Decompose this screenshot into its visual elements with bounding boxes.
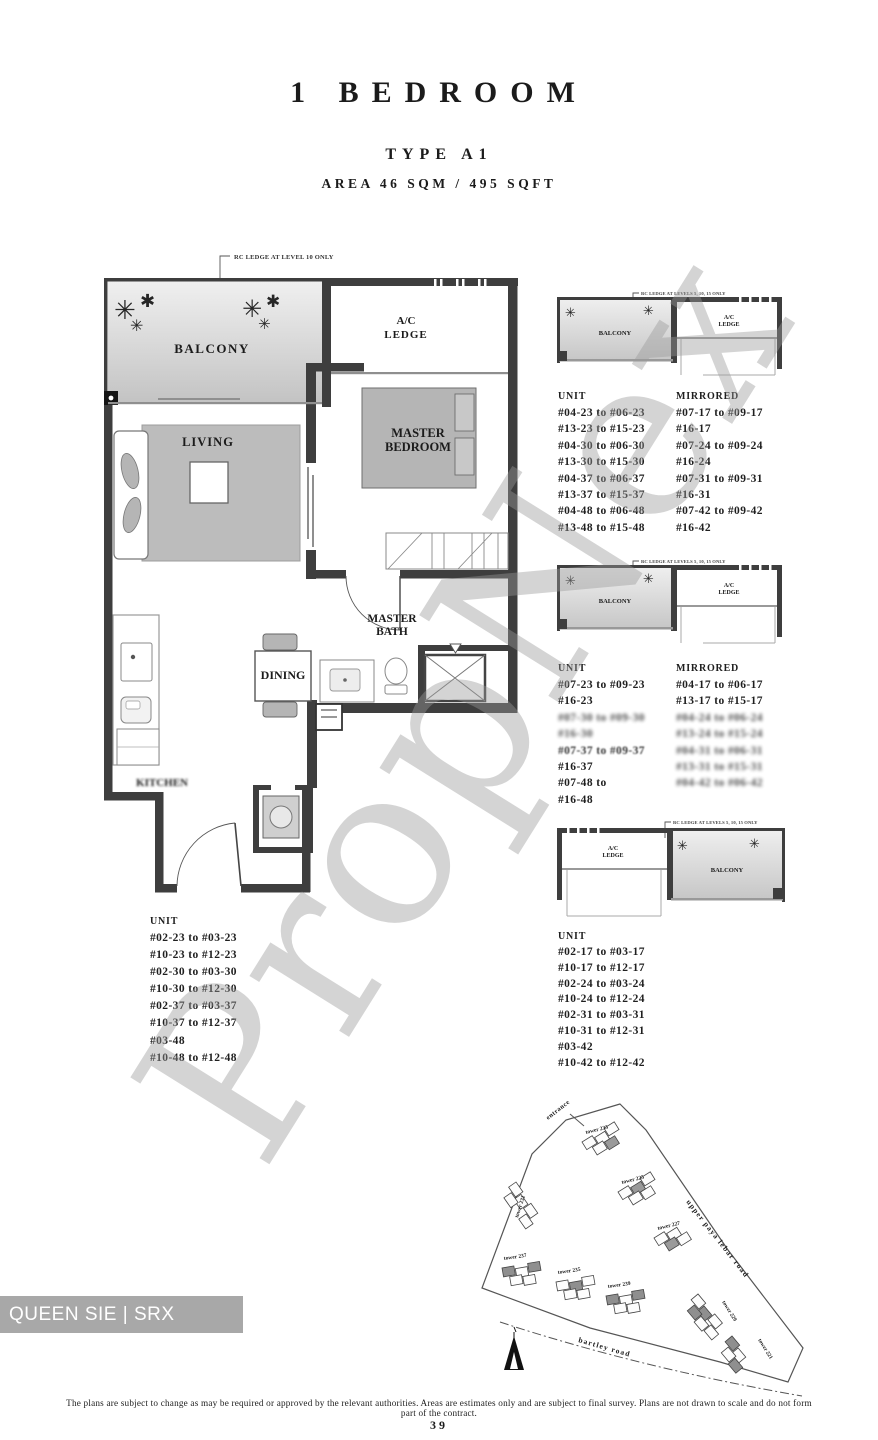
unit-range: #04-48 to #06-48: [558, 503, 645, 519]
unit-range: #13-31 to #15-31: [676, 759, 763, 775]
svg-text:✱: ✱: [266, 292, 280, 312]
unit-range: #03-42: [558, 1040, 645, 1056]
site-boundary: [482, 1104, 803, 1396]
unit-range: #04-37 to #06-37: [558, 471, 645, 487]
unit-column-header: UNIT: [558, 663, 645, 674]
unit-range: #02-17 to #03-17: [558, 945, 645, 961]
ac-ledge-label2: LEDGE: [384, 329, 428, 341]
unit-range: #16-37: [558, 759, 645, 775]
unit-range: #13-17 to #15-17: [676, 693, 763, 709]
unit-range: #04-42 to #06-42: [676, 775, 763, 791]
unit-range: #13-24 to #15-24: [676, 726, 763, 742]
unit-column-header: UNIT: [150, 916, 237, 927]
north-arrow-icon: [504, 1327, 524, 1370]
tower-cluster: [500, 1122, 751, 1373]
stack3-annotation: RC LEDGE AT LEVELS 5, 10, 15 ONLY: [673, 820, 758, 825]
stack2-mirrored-list: MIRRORED #04-17 to #06-17 #13-17 to #15-…: [676, 663, 763, 792]
main-plan-unit-list: UNIT #02-23 to #03-23 #10-23 to #12-23 #…: [150, 916, 237, 1067]
unit-range: #04-24 to #06-24: [676, 710, 763, 726]
stack3-unit-list: UNIT #02-17 to #03-17 #10-17 to #12-17 #…: [558, 931, 645, 1071]
master-bath-label2: BATH: [376, 626, 408, 638]
unit-column-header: UNIT: [558, 931, 645, 942]
entrance-label: entrance: [545, 1099, 572, 1122]
unit-range: #10-23 to #12-23: [150, 947, 237, 964]
unit-range: #10-24 to #12-24: [558, 992, 645, 1008]
stack1-ac-label2: LEDGE: [718, 322, 739, 328]
stack1-mirrored-list: MIRRORED #07-17 to #09-17 #16-17 #07-24 …: [676, 391, 763, 536]
master-bedroom-label2: BEDROOM: [385, 440, 451, 454]
unit-type-subtitle: TYPE A1: [0, 146, 878, 164]
tower-label: tower 229: [720, 1300, 737, 1323]
unit-range: #04-31 to #06-31: [676, 743, 763, 759]
stack-diagram-1: RC LEDGE AT LEVELS 5, 10, 15 ONLY ✳ ✳ BA…: [553, 283, 793, 383]
balcony-label: BALCONY: [174, 341, 250, 356]
stack3-balcony-label: BALCONY: [711, 867, 744, 874]
tower-label: tower 237: [503, 1253, 527, 1262]
stack2-unit-list: UNIT #07-23 to #09-23 #16-23 #07-30 to #…: [558, 663, 645, 808]
agent-watermark-badge: QUEEN SIE | SRX PROPERTY: [0, 1296, 243, 1333]
page-title: 1 BEDROOM: [0, 76, 878, 110]
plant-icon: ✳: [677, 839, 688, 854]
unit-area-subtitle: AREA 46 SQM / 495 SQFT: [0, 176, 878, 192]
unit-range: #10-37 to #12-37: [150, 1015, 237, 1032]
tower-label: tower 221: [756, 1338, 773, 1361]
road-label-upper-paya-lebar: upper paya lebar road: [684, 1198, 751, 1280]
unit-range: #02-31 to #03-31: [558, 1008, 645, 1024]
unit-range: #04-23 to #06-23: [558, 405, 645, 421]
unit-range: #07-31 to #09-31: [676, 471, 763, 487]
unit-range: #07-30 to #09-30: [558, 710, 645, 726]
unit-range: #02-23 to #03-23: [150, 930, 237, 947]
stack1-ac-label: A/C: [724, 315, 734, 321]
bedroom-furniture: [362, 388, 508, 569]
svg-text:RC LEDGE AT LEVEL 10 ONLY: RC LEDGE AT LEVEL 10 ONLY: [234, 254, 334, 261]
stack2-ac-label: A/C: [724, 583, 734, 589]
stack1-unit-list: UNIT #04-23 to #06-23 #13-23 to #15-23 #…: [558, 391, 645, 536]
unit-range: #13-30 to #15-30: [558, 454, 645, 470]
plant-icon: ✳: [565, 574, 576, 589]
unit-range: #07-24 to #09-24: [676, 438, 763, 454]
stack2-balcony-label: BALCONY: [599, 598, 632, 605]
master-bedroom-label: MASTER: [391, 426, 445, 440]
stack2-annotation: RC LEDGE AT LEVELS 5, 10, 15 ONLY: [641, 559, 726, 564]
plant-icon: ✳: [643, 572, 654, 587]
tower-label: tower 235: [557, 1267, 581, 1276]
entry-door: [177, 823, 241, 886]
unit-range: #13-23 to #15-23: [558, 421, 645, 437]
unit-range: #04-30 to #06-30: [558, 438, 645, 454]
road-label-bartley: bartley road: [577, 1335, 631, 1359]
stack3-ac-label: A/C: [608, 846, 618, 852]
unit-range: #07-48 to: [558, 775, 645, 791]
mirrored-column-header: MIRRORED: [676, 391, 763, 402]
page-number: 39: [0, 1418, 878, 1433]
unit-range: #16-23: [558, 693, 645, 709]
unit-range: #13-37 to #15-37: [558, 487, 645, 503]
unit-range: #10-31 to #12-31: [558, 1024, 645, 1040]
stack1-annotation: RC LEDGE AT LEVELS 5, 10, 15 ONLY: [641, 291, 726, 296]
svg-text:✳: ✳: [258, 315, 271, 333]
plant-icon: ✳: [565, 306, 576, 321]
tower-label: tower 239: [607, 1281, 631, 1290]
unit-range: #10-17 to #12-17: [558, 961, 645, 977]
unit-range: #03-48: [150, 1033, 237, 1050]
kitchen-label: KITCHEN: [136, 777, 188, 789]
unit-range: #16-42: [676, 520, 763, 536]
main-floor-plan: RC LEDGE AT LEVEL 10 ONLY: [100, 245, 520, 910]
stack-diagram-3: RC LEDGE AT LEVELS 5, 10, 15 ONLY ✳ ✳ A/…: [553, 810, 793, 928]
unit-range: #07-37 to #09-37: [558, 743, 645, 759]
master-bath-label: MASTER: [367, 613, 417, 625]
unit-range: #07-17 to #09-17: [676, 405, 763, 421]
kitchen-fixtures: [113, 615, 159, 765]
stack3-ac-label2: LEDGE: [602, 853, 623, 859]
site-plan: tower 233 tower 225 tower 227 tower 231 …: [470, 1090, 870, 1400]
stack1-balcony-label: BALCONY: [599, 330, 632, 337]
unit-range: #07-23 to #09-23: [558, 677, 645, 693]
ac-ledge-label: A/C: [397, 315, 416, 327]
plant-icon: ✳: [749, 837, 760, 852]
unit-range: #07-42 to #09-42: [676, 503, 763, 519]
unit-range: #02-24 to #03-24: [558, 977, 645, 993]
disclaimer-text: The plans are subject to change as may b…: [59, 1398, 819, 1418]
unit-range: #16-30: [558, 726, 645, 742]
mirrored-column-header: MIRRORED: [676, 663, 763, 674]
svg-text:✱: ✱: [140, 291, 155, 312]
unit-range: #02-37 to #03-37: [150, 998, 237, 1015]
unit-range: #16-17: [676, 421, 763, 437]
bath-fixtures: [320, 576, 485, 702]
plant-icon: ✳: [643, 304, 654, 319]
living-label: LIVING: [182, 435, 234, 449]
unit-range: #16-48: [558, 792, 645, 808]
unit-range: #16-24: [676, 454, 763, 470]
unit-range: #10-30 to #12-30: [150, 981, 237, 998]
stack-diagram-2: RC LEDGE AT LEVELS 5, 10, 15 ONLY ✳ ✳ BA…: [553, 551, 793, 651]
unit-column-header: UNIT: [558, 391, 645, 402]
unit-range: #10-48 to #12-48: [150, 1050, 237, 1067]
stack2-ac-label2: LEDGE: [718, 590, 739, 596]
unit-range: #10-42 to #12-42: [558, 1056, 645, 1072]
svg-text:✳: ✳: [130, 316, 143, 335]
floorplan-page: 1 BEDROOM TYPE A1 AREA 46 SQM / 495 SQFT…: [0, 0, 878, 1440]
unit-range: #16-31: [676, 487, 763, 503]
unit-range: #04-17 to #06-17: [676, 677, 763, 693]
dining-label: DINING: [261, 668, 306, 682]
unit-range: #02-30 to #03-30: [150, 964, 237, 981]
rc-ledge-annotation: RC LEDGE AT LEVEL 10 ONLY: [220, 254, 334, 278]
unit-range: #13-48 to #15-48: [558, 520, 645, 536]
